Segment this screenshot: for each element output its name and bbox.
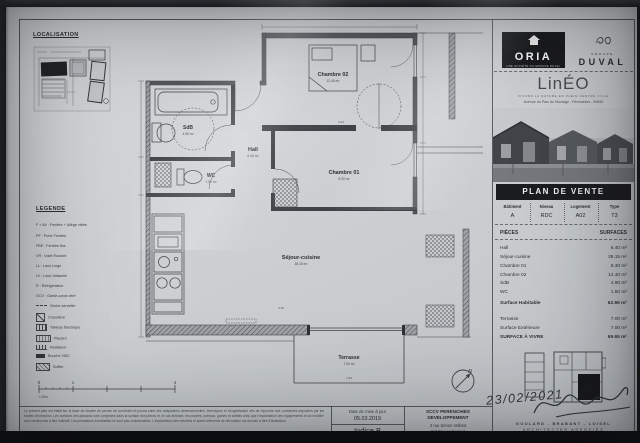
surface-row-label: Séjour-cuisine	[500, 255, 530, 260]
photo-black-bottom-bar	[0, 431, 640, 443]
footer-separator	[19, 406, 492, 407]
surface-row-value: 12.40 m²	[608, 273, 627, 278]
surface-row-value: 4.90 m²	[611, 281, 627, 286]
legend-item: Radiateur	[36, 345, 66, 350]
legend-item: LV : Lave-Vaisselle	[36, 275, 67, 279]
surface-row-value: 7.00 m²	[611, 326, 627, 331]
legend-item: FBE : Fenêtre fixe	[36, 245, 66, 249]
wall	[271, 131, 275, 169]
footer-divider	[331, 424, 404, 425]
placard-icon	[36, 335, 51, 342]
divider	[495, 239, 632, 240]
developer-address-line1: 3 rue Simon Vollant	[406, 424, 490, 428]
surface-row-label: Chambre 02	[500, 273, 526, 278]
wall	[150, 157, 235, 161]
legend-item-label: Chaudière	[48, 315, 65, 319]
scale-unit: 1.00m	[39, 395, 48, 399]
divider	[495, 224, 632, 225]
legend-item: PF : Porte Fenêtre	[36, 235, 66, 239]
seche-serviette-icon	[36, 305, 47, 307]
legend-item-label: Tableau Électrique	[50, 325, 80, 329]
legend-item: F + AV : Fenêtre + Allège vitrée	[36, 224, 87, 228]
surfaces-col-pieces: PIÈCES	[500, 230, 518, 236]
entrance-door-arc	[235, 85, 261, 111]
room-area: 6.40 m²	[247, 154, 259, 158]
oria-tagline: UNE SOCIÉTÉ DU GROUPE DUVAL	[502, 65, 565, 68]
legend-title: LEGENDE	[36, 207, 65, 213]
room-area: 9.30 m²	[338, 177, 350, 181]
sales-panel: ORIA UNE SOCIÉTÉ DU GROUPE DUVAL GROUPE …	[492, 19, 635, 437]
duct-shaft	[426, 235, 454, 257]
developer-name-line2: DEVELOPPEMENT	[406, 416, 490, 421]
unit-value: A	[496, 213, 529, 219]
lineo-subtitle: VIVONS LA NATURE EN PLEIN CENTRE VILLE	[492, 94, 635, 98]
legend-item: Bouche VMC	[36, 354, 70, 359]
room-label: Hall	[248, 147, 258, 153]
legend-item-label: Sèche serviette	[50, 304, 75, 308]
wall	[262, 33, 417, 38]
site-location-map	[33, 46, 113, 114]
plan-de-vente-title: PLAN DE VENTE	[496, 184, 631, 200]
legend-item: Chaudière	[36, 313, 65, 322]
room-area: 4.90 m²	[182, 132, 194, 136]
floor-plan-drawing: Chambre 02 12.40 m² Chambre 01 9.30 m² H…	[131, 19, 489, 405]
surface-row-value: 9.30 m²	[611, 264, 627, 269]
unit-value: RDC	[530, 213, 563, 219]
duct-shaft	[155, 163, 171, 187]
dimension-text: 3.10	[278, 306, 284, 310]
divider	[494, 71, 633, 72]
unit-value: A02	[564, 213, 597, 219]
neighbour-wall	[449, 33, 455, 119]
legend-item: LL : Lave-Linge	[36, 265, 61, 269]
room-label: Chambre 01	[329, 170, 360, 176]
photo-shadow-left	[0, 0, 9, 443]
bathtub-icon	[155, 89, 227, 115]
dimension-text: 1.94	[346, 376, 352, 380]
dimension-line	[420, 33, 426, 214]
plan-sheet: LOCALISATION LEGENDE F + AV : Fenêtre + …	[6, 7, 637, 431]
north-label: N	[468, 369, 472, 375]
turning-circle	[172, 108, 214, 150]
update-date-label: Date de mise à jour	[333, 410, 402, 414]
dimension-line	[262, 24, 417, 30]
wall	[146, 193, 235, 197]
room-area: 12.40 m²	[326, 79, 340, 83]
surface-row-value: 28.15 m²	[608, 255, 627, 260]
legend-item-label: Placard	[54, 336, 67, 340]
tableau-electrique-icon	[36, 324, 47, 331]
neighbour-wall	[463, 229, 469, 337]
room-label: SdB	[183, 125, 193, 131]
window-swing-arc	[391, 45, 413, 67]
wall	[413, 33, 417, 45]
room-label: Terrasse	[338, 355, 359, 361]
surfaces-col-surfaces: SURFACES	[600, 230, 627, 236]
legend-item: Placard	[36, 335, 67, 342]
wall-exterior	[146, 81, 150, 337]
legend-item: Soffite	[36, 363, 63, 371]
room-area: 1.50 m²	[205, 180, 217, 184]
duval-groupe-label: GROUPE	[574, 52, 631, 56]
table-divider	[530, 203, 531, 222]
wall	[262, 33, 266, 85]
localisation-title: LOCALISATION	[33, 33, 79, 39]
lineo-address: Avenue du Parc du Moulage - Pérenchies -…	[492, 100, 635, 104]
residence-perspective-image	[493, 108, 634, 182]
room-label: Séjour-cuisine	[282, 255, 321, 261]
radiator-symbol	[226, 319, 256, 323]
kitchen-counter	[152, 214, 184, 314]
legend-item-label: Bouche VMC	[48, 354, 70, 358]
legend-item-label: Soffite	[53, 365, 63, 369]
dimension-text: 4.21	[338, 120, 344, 124]
wall	[260, 81, 266, 85]
room-label: WC	[207, 173, 216, 179]
scale-label-0: 0	[38, 380, 41, 385]
legend-item: Sèche serviette	[36, 305, 75, 309]
photo-shadow-top	[0, 0, 640, 8]
surface-row-label: Terrasse	[500, 317, 518, 322]
wall	[271, 207, 417, 211]
unit-col-header: Bâtiment	[496, 204, 529, 209]
scale-label-1: 1	[72, 380, 75, 385]
radiateur-icon	[36, 345, 47, 350]
surface-row-value: 6.40 m²	[611, 246, 627, 251]
duval-wordmark: DUVAL	[574, 57, 631, 67]
room-area: 7.00 m²	[343, 362, 355, 366]
terrace-outline	[146, 335, 404, 383]
update-date-value: 05.03.2019	[333, 417, 402, 422]
wall	[146, 81, 235, 85]
legend-item: VR : Volet Roulant	[36, 255, 66, 259]
table-divider	[564, 203, 565, 222]
window-swing-arc	[391, 143, 413, 165]
soffite-icon	[36, 363, 50, 371]
site-building-filled	[41, 62, 67, 77]
table-divider	[598, 203, 599, 222]
bay-window	[309, 328, 404, 331]
surface-row-label: Chambre 01	[500, 264, 526, 269]
duct-shaft	[426, 305, 454, 327]
dimension-line	[138, 81, 144, 337]
photo-of-floor-plan: LOCALISATION LEGENDE F + AV : Fenêtre + …	[0, 0, 640, 443]
oria-wordmark: ORIA	[502, 52, 565, 63]
unit-col-header: Type	[598, 204, 631, 209]
closet-shaft	[273, 179, 297, 207]
surface-row-label: Hall	[500, 246, 508, 251]
legend-item: Tableau Électrique	[36, 324, 80, 331]
chaudiere-icon	[36, 313, 45, 322]
room-label: Chambre 02	[318, 72, 349, 78]
lineo-wordmark: LinÉO	[492, 74, 635, 94]
wall	[231, 85, 235, 125]
oria-logo: ORIA UNE SOCIÉTÉ DU GROUPE DUVAL	[502, 32, 565, 68]
wall-exterior	[404, 325, 417, 335]
unit-col-header: Logement	[564, 204, 597, 209]
legend-item: GCV : Garde-corps vitré	[36, 295, 76, 299]
wall	[231, 161, 235, 167]
wall	[413, 77, 417, 143]
surface-row-label: Surface Extérieure	[500, 326, 540, 331]
legend-item-label: Radiateur	[50, 345, 66, 349]
washbasin-icon	[152, 123, 175, 142]
wall	[381, 125, 417, 131]
nightstand-icon	[361, 45, 375, 61]
surface-total-value: 69.65 m²	[608, 335, 627, 340]
wall	[262, 125, 356, 131]
bed-icon	[309, 45, 357, 91]
architect-name: GOULARD . BRABANT - LOISEL	[492, 421, 635, 426]
room-area: 28.15 m²	[294, 262, 308, 266]
surface-row-label: SdB	[500, 281, 509, 286]
architect-signature	[530, 377, 634, 423]
developer-name-line1: SCCV PERENCHIES	[406, 410, 490, 415]
surface-row-value: 1.50 m²	[611, 290, 627, 295]
duval-monogram-icon	[593, 34, 613, 46]
surface-habitable-label: Surface Habitable	[500, 301, 541, 306]
surface-total-label: SURFACE À VIVRE	[500, 335, 543, 340]
toilet-icon	[177, 169, 202, 185]
bouche-vmc-icon	[36, 354, 45, 358]
oria-house-icon	[527, 35, 541, 46]
surface-row-label: WC	[500, 290, 508, 295]
sdb-door-arc	[205, 125, 231, 151]
unit-value: T3	[598, 213, 631, 219]
surface-row-value: 7.00 m²	[611, 317, 627, 322]
wall-exterior	[146, 325, 309, 335]
unit-col-header: Niveau	[530, 204, 563, 209]
duval-logo: GROUPE DUVAL	[574, 33, 631, 67]
legal-disclaimer: Le présent plan est établi sur la base d…	[24, 409, 324, 424]
legend-item: R : Réfrigérateur	[36, 285, 63, 289]
surface-habitable-value: 62.65 m²	[608, 301, 627, 306]
